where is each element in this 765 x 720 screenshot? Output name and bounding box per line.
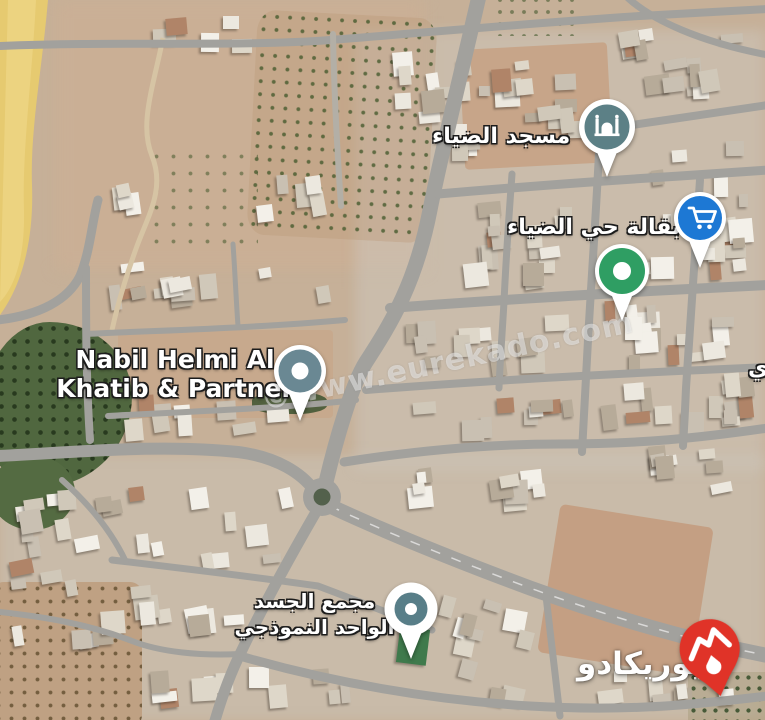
dot-marker-icon xyxy=(405,603,417,615)
office-pin[interactable] xyxy=(268,341,332,423)
grocery-label[interactable]: بقالة حي الضياء xyxy=(507,215,680,240)
mosque-label[interactable]: مسجد الضياء xyxy=(432,124,570,149)
dot-marker-icon xyxy=(292,363,309,380)
dirt-track xyxy=(112,38,163,330)
satellite-map[interactable]: ©www.eurekado.com مسجد الضياء بقالة حي ا… xyxy=(0,0,765,720)
roundabout-island xyxy=(314,489,331,506)
grocery-pin[interactable] xyxy=(668,188,732,270)
dot-marker-icon xyxy=(613,262,631,280)
green-location-pin[interactable] xyxy=(590,241,654,323)
clipped-label-fragment: ي xyxy=(748,356,765,381)
mosque-pin[interactable] xyxy=(575,97,639,179)
complex-pin[interactable] xyxy=(379,579,443,661)
